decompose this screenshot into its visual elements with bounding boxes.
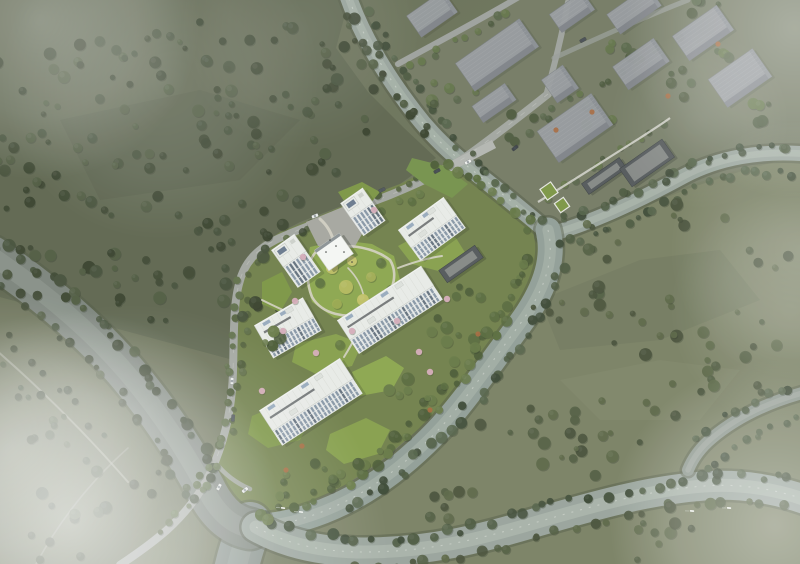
haze-overlay	[0, 0, 800, 564]
aerial-render-canvas	[0, 0, 800, 564]
aerial-masterplan-render	[0, 0, 800, 564]
